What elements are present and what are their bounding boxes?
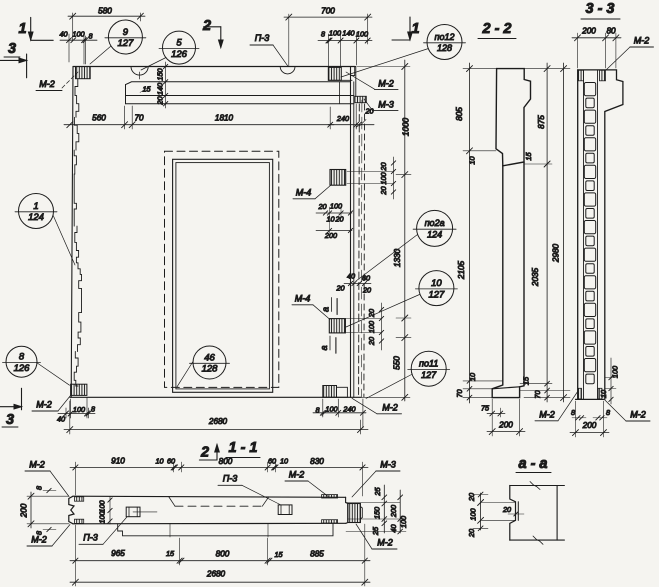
svg-text:2105: 2105 [457, 260, 466, 280]
svg-text:М-2: М-2 [378, 79, 394, 89]
svg-text:805: 805 [455, 107, 464, 121]
svg-text:100: 100 [611, 366, 620, 378]
svg-text:126: 126 [171, 49, 188, 60]
svg-text:200: 200 [20, 503, 29, 518]
svg-text:10: 10 [599, 390, 608, 398]
svg-text:100: 100 [367, 321, 376, 333]
svg-text:240: 240 [342, 405, 355, 414]
svg-text:a - a: a - a [518, 456, 547, 472]
svg-text:40: 40 [57, 415, 65, 424]
svg-text:1: 1 [18, 21, 26, 37]
svg-text:550: 550 [393, 356, 402, 370]
svg-text:2980: 2980 [552, 243, 561, 263]
svg-text:15: 15 [522, 376, 531, 385]
svg-text:10: 10 [155, 457, 163, 466]
svg-text:75: 75 [481, 404, 490, 413]
svg-text:70: 70 [533, 390, 542, 398]
svg-text:3: 3 [6, 412, 14, 428]
svg-text:40: 40 [59, 30, 67, 39]
svg-text:200: 200 [389, 505, 398, 518]
svg-text:150: 150 [373, 507, 382, 519]
svg-text:800: 800 [216, 550, 230, 559]
svg-text:10: 10 [326, 215, 334, 224]
svg-text:965: 965 [111, 549, 125, 558]
svg-text:по12: по12 [435, 32, 455, 42]
svg-text:100: 100 [399, 516, 408, 528]
svg-text:1810: 1810 [215, 114, 234, 123]
svg-text:20: 20 [379, 162, 388, 171]
svg-text:60: 60 [268, 457, 276, 466]
svg-text:885: 885 [310, 550, 324, 559]
svg-text:20: 20 [379, 186, 388, 195]
svg-text:127: 127 [117, 38, 134, 49]
svg-text:100: 100 [469, 508, 478, 520]
svg-text:15: 15 [166, 549, 175, 558]
svg-text:20: 20 [367, 337, 376, 346]
svg-text:15: 15 [524, 152, 533, 161]
svg-text:2: 2 [200, 445, 209, 461]
svg-text:100: 100 [73, 405, 85, 414]
svg-text:128: 128 [202, 364, 219, 375]
svg-text:20: 20 [467, 493, 476, 502]
svg-text:1330: 1330 [393, 248, 402, 267]
svg-text:М-2: М-2 [630, 410, 646, 420]
svg-text:20: 20 [317, 202, 326, 211]
svg-text:127: 127 [428, 289, 445, 300]
svg-text:9: 9 [123, 27, 129, 38]
svg-text:20: 20 [334, 215, 343, 224]
svg-text:2 - 2: 2 - 2 [481, 21, 511, 37]
svg-text:М-2: М-2 [289, 470, 305, 480]
svg-text:М-2: М-2 [29, 460, 45, 470]
svg-text:140: 140 [156, 83, 165, 95]
svg-text:20: 20 [364, 107, 373, 116]
svg-text:46: 46 [204, 352, 215, 363]
svg-text:70: 70 [455, 389, 464, 397]
svg-text:20: 20 [502, 505, 511, 514]
svg-text:100: 100 [329, 29, 341, 38]
svg-text:М-2: М-2 [31, 535, 47, 545]
svg-text:10: 10 [468, 156, 477, 164]
svg-text:М-2: М-2 [36, 400, 52, 410]
svg-text:800: 800 [219, 457, 233, 466]
svg-text:580: 580 [98, 7, 112, 16]
svg-text:40: 40 [389, 524, 398, 532]
svg-text:875: 875 [537, 115, 546, 129]
svg-text:25: 25 [373, 487, 382, 497]
svg-text:1: 1 [33, 201, 38, 212]
svg-text:100: 100 [330, 202, 342, 211]
svg-text:1000: 1000 [402, 117, 411, 136]
svg-text:a: a [319, 345, 329, 350]
svg-text:1 - 1: 1 - 1 [228, 440, 257, 456]
svg-text:40: 40 [347, 272, 355, 281]
svg-text:100: 100 [72, 30, 84, 39]
svg-text:10: 10 [468, 373, 477, 381]
svg-text:60: 60 [362, 274, 370, 283]
svg-text:150: 150 [156, 68, 165, 80]
svg-text:200: 200 [582, 421, 597, 430]
svg-text:М-2: М-2 [634, 36, 650, 46]
svg-text:100: 100 [325, 405, 337, 414]
svg-text:124: 124 [427, 230, 442, 240]
svg-text:560: 560 [92, 114, 106, 123]
svg-text:100: 100 [356, 30, 368, 39]
svg-text:М-4: М-4 [296, 188, 312, 198]
svg-text:по11: по11 [419, 359, 438, 369]
svg-text:20: 20 [335, 284, 344, 293]
svg-text:1: 1 [411, 21, 419, 37]
svg-text:830: 830 [310, 457, 324, 466]
svg-text:70: 70 [134, 114, 144, 123]
svg-text:8: 8 [19, 352, 25, 363]
svg-text:100: 100 [379, 172, 388, 184]
svg-text:a: a [321, 307, 331, 312]
svg-text:240: 240 [336, 114, 349, 123]
svg-text:по2а: по2а [425, 218, 445, 228]
svg-text:20: 20 [156, 96, 165, 105]
svg-text:10: 10 [280, 457, 288, 466]
svg-text:128: 128 [437, 43, 452, 53]
svg-text:2: 2 [202, 18, 211, 34]
svg-text:М-3: М-3 [378, 100, 394, 110]
svg-text:М-2: М-2 [382, 403, 398, 413]
svg-text:200: 200 [324, 231, 337, 240]
svg-text:126: 126 [14, 363, 31, 374]
svg-text:2680: 2680 [206, 570, 226, 579]
svg-text:3: 3 [8, 41, 16, 57]
svg-text:М-4: М-4 [295, 294, 311, 304]
svg-text:5: 5 [176, 37, 182, 48]
svg-text:2680: 2680 [208, 417, 228, 426]
svg-text:124: 124 [28, 212, 44, 223]
svg-text:2035: 2035 [531, 267, 540, 287]
svg-text:20: 20 [467, 529, 476, 538]
svg-text:П-3: П-3 [255, 33, 270, 43]
svg-text:100: 100 [98, 500, 107, 512]
svg-text:200: 200 [498, 421, 513, 430]
svg-text:20: 20 [362, 286, 371, 295]
svg-text:М-2: М-2 [377, 538, 393, 548]
svg-text:100: 100 [98, 511, 107, 523]
svg-text:80: 80 [606, 27, 616, 36]
svg-text:20: 20 [367, 309, 376, 318]
svg-text:200: 200 [581, 27, 596, 36]
svg-text:140: 140 [342, 29, 354, 38]
svg-text:910: 910 [111, 457, 125, 466]
svg-text:М-3: М-3 [380, 460, 396, 470]
svg-text:700: 700 [321, 7, 335, 16]
svg-text:15: 15 [274, 550, 283, 559]
svg-text:25: 25 [371, 526, 380, 536]
svg-text:10: 10 [431, 278, 442, 289]
svg-text:П-3: П-3 [223, 474, 238, 484]
svg-text:М-2: М-2 [539, 410, 555, 420]
svg-text:М-2: М-2 [39, 79, 55, 89]
svg-text:127: 127 [421, 370, 437, 380]
svg-text:3 - 3: 3 - 3 [585, 1, 614, 17]
svg-text:П-3: П-3 [83, 533, 98, 543]
